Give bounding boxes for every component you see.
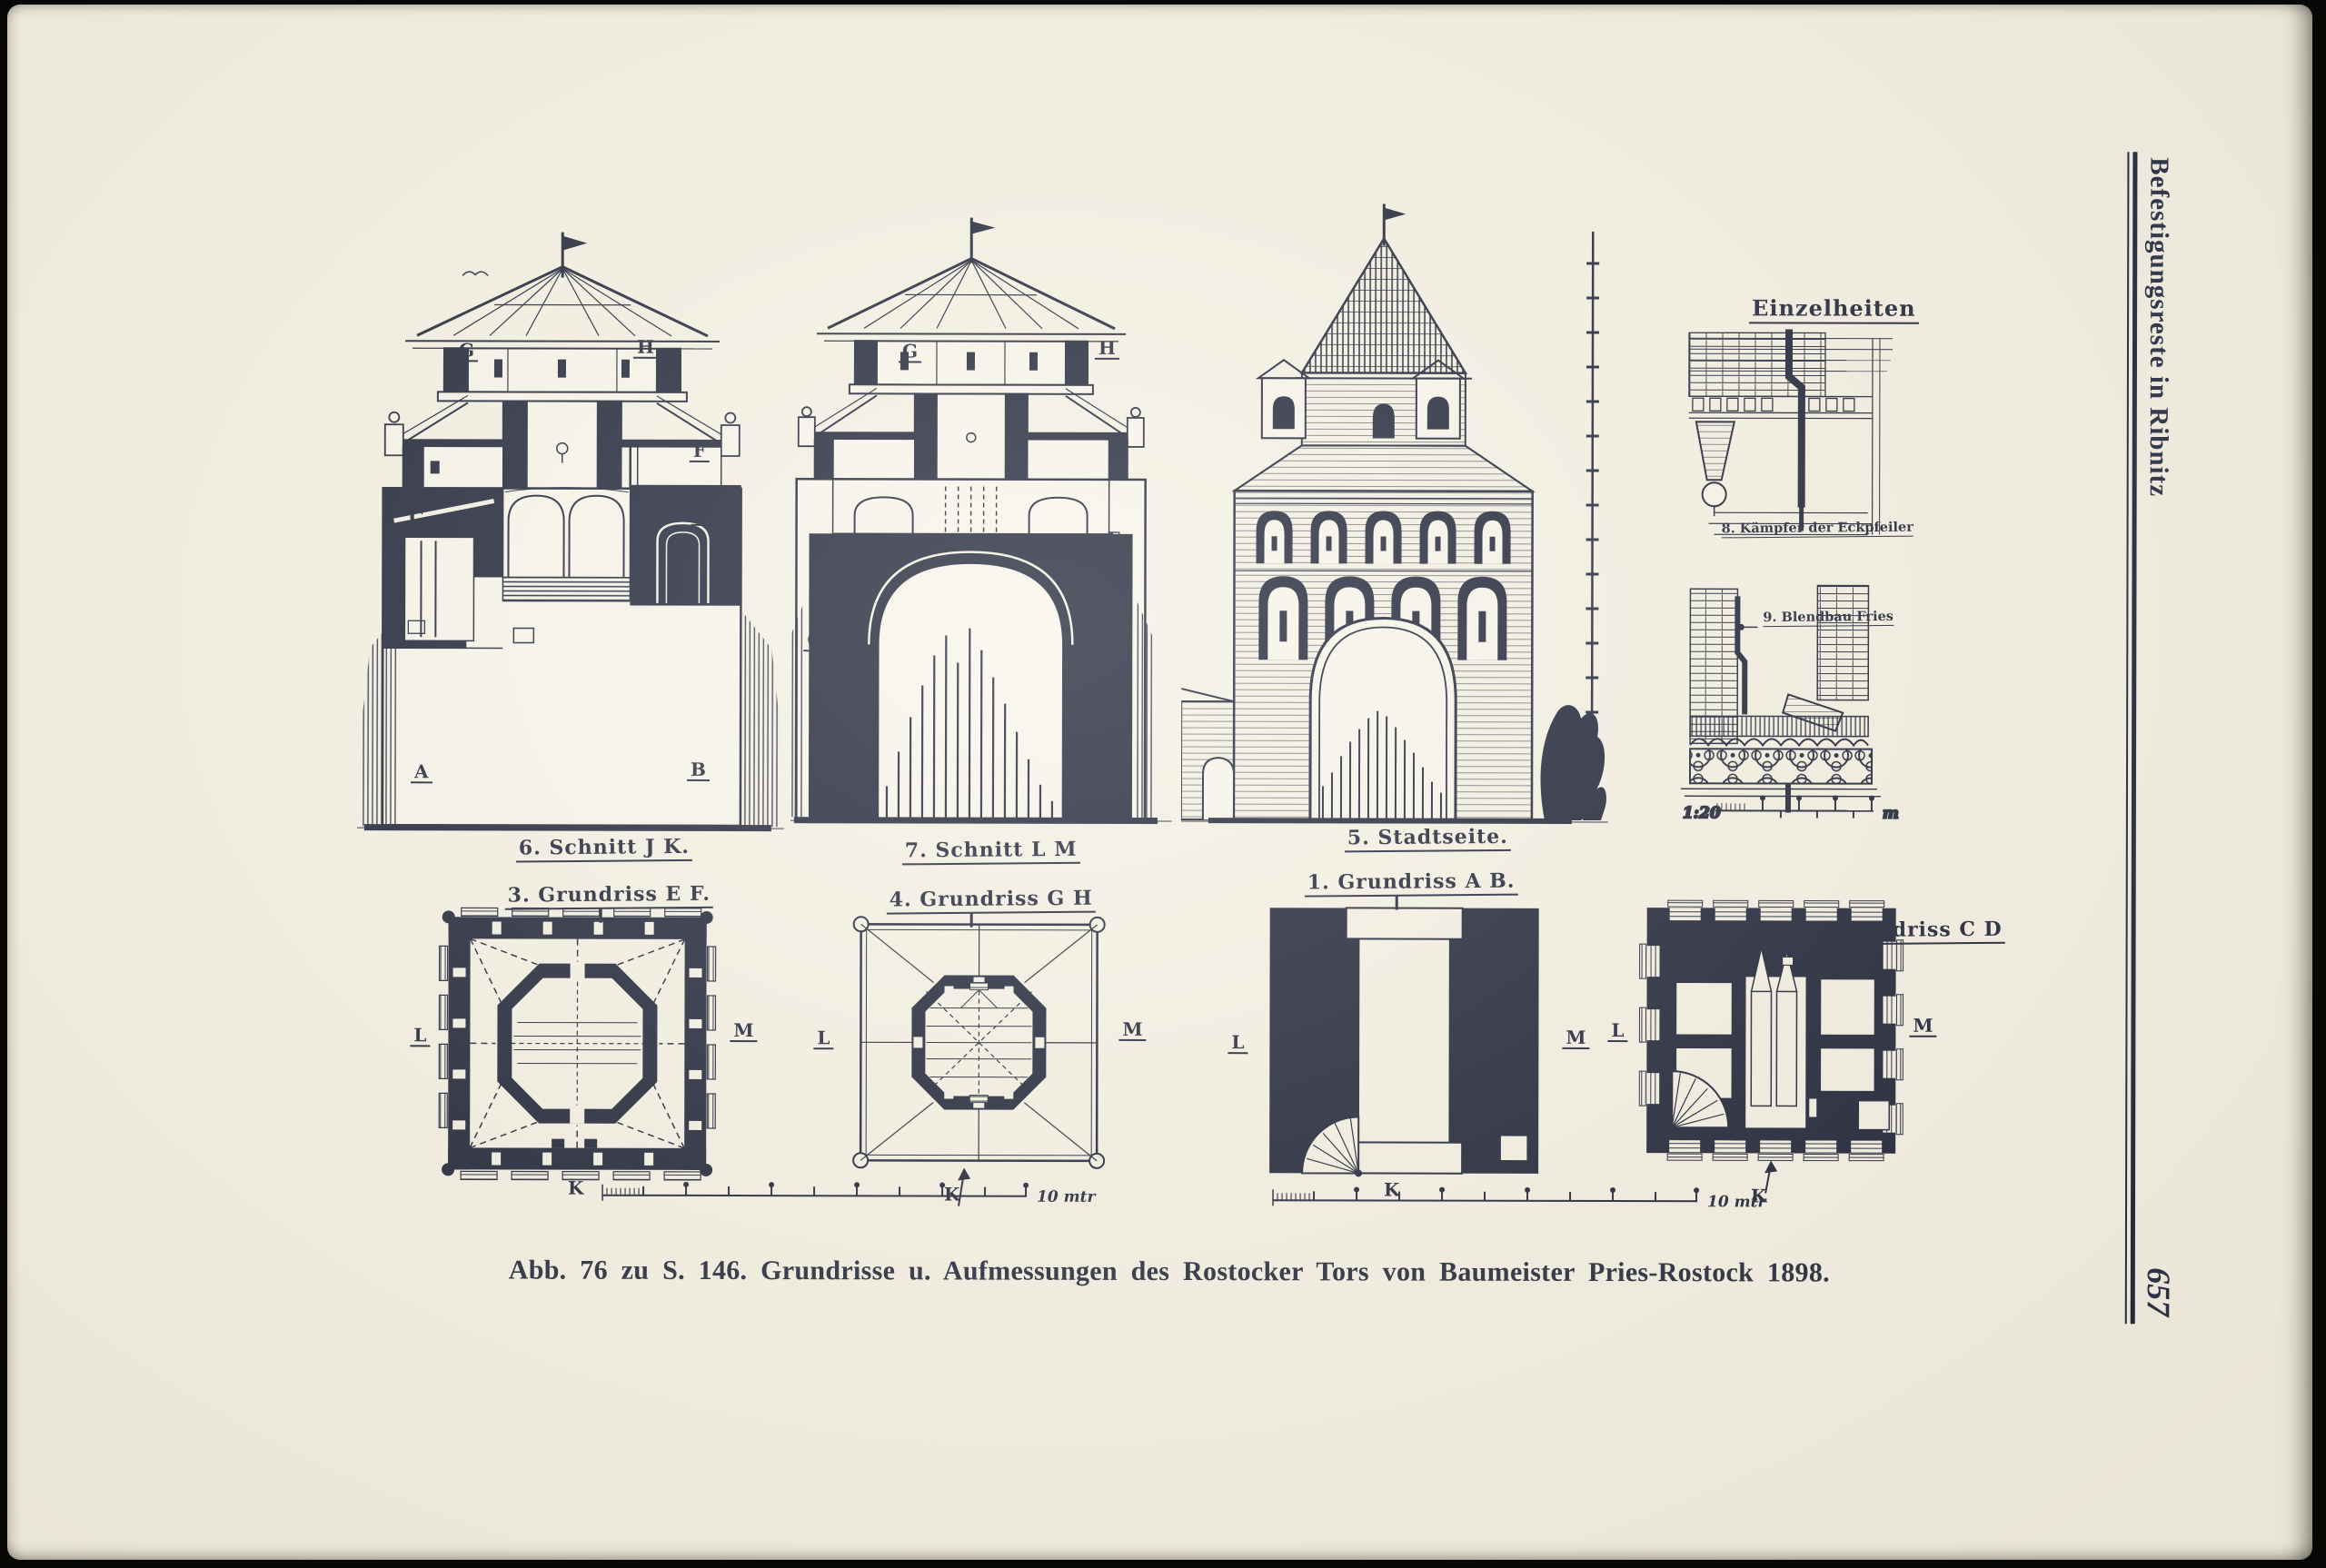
margin-title: Befestigungsreste in Ribnitz	[2143, 157, 2174, 497]
marker-letter-d: D	[691, 505, 714, 526]
plan-scale-label: 10 mtr	[1037, 1188, 1096, 1206]
right-wall-mass	[1449, 908, 1539, 1174]
margin-rule-thick	[2131, 152, 2138, 1324]
marker-letter-h: H	[1095, 339, 1119, 360]
bird-mark	[462, 272, 488, 275]
label-schnitt-jk: 6. Schnitt J K.	[516, 835, 692, 863]
figure-caption: Abb. 76 zu S. 146. Grundrisse u. Aufmess…	[333, 1255, 2005, 1289]
marker-letter-l: L	[410, 1026, 430, 1047]
label-grundriss-gh: 4. Grundriss G H	[887, 887, 1096, 915]
label-einzelheiten: Einzelheiten	[1749, 294, 1919, 323]
plan-ab-drawing	[1222, 869, 1595, 1206]
quatrefoil-band	[1690, 749, 1872, 783]
marker-letter-a: A	[411, 762, 432, 783]
marker-letter-k: K	[940, 1185, 963, 1204]
marker-letter-g: G	[899, 342, 921, 362]
marker-letter-b: B	[687, 760, 710, 781]
label-grundriss-ab: 1. Grundriss A B.	[1305, 869, 1518, 898]
marker-letter-f: F	[1104, 530, 1124, 551]
plan-ef-drawing	[406, 904, 752, 1218]
marker-letter-e: E	[403, 444, 423, 465]
marker-letter-c: C	[406, 508, 428, 529]
detail-scale-unit: m	[1883, 805, 1899, 823]
plan-gh-drawing	[799, 898, 1163, 1213]
details-drawing: 1:20 m	[1681, 289, 1954, 826]
measuring-rod	[1585, 232, 1599, 773]
label-pointer	[600, 908, 602, 923]
plan-scale-bar-right: 10 mtr	[1266, 1184, 1774, 1217]
marker-letter-d: D	[1107, 628, 1129, 649]
detail-scale-label: 1:20	[1683, 804, 1721, 822]
marker-letter-l: L	[1607, 1021, 1627, 1042]
marker-letter-g: G	[455, 341, 478, 362]
label-pointer	[970, 913, 973, 928]
marker-letter-h: H	[633, 338, 658, 359]
label-pointer	[1877, 944, 1880, 958]
marker-letter-k: K	[1747, 1186, 1770, 1206]
label-stadtseite: 5. Stadtseite.	[1345, 825, 1511, 853]
label-grundriss-cd: 2. Grundriss C D	[1799, 918, 2005, 946]
marker-letter-m: M	[1909, 1017, 1936, 1037]
marker-letter-f: F	[690, 442, 710, 462]
spire-roof	[1302, 238, 1466, 372]
marker-letter-m: M	[1562, 1028, 1589, 1049]
label-detail-9: 9. Blendbau Fries	[1763, 609, 1894, 627]
label-pointer	[1396, 896, 1398, 910]
label-grundriss-ef: 3. Grundriss E F.	[505, 882, 713, 910]
marker-letter-l: L	[1228, 1033, 1247, 1054]
book-page: 1:20 m	[7, 5, 2312, 1560]
label-schnitt-lm: 7. Schnitt L M	[902, 838, 1080, 866]
marker-letter-e: E	[810, 536, 830, 557]
marker-letter-k: K	[1380, 1181, 1403, 1200]
marker-letter-l: L	[813, 1028, 833, 1049]
plan-scale-bar-left: 10 mtr	[595, 1179, 1104, 1213]
marker-letter-c: C	[803, 630, 825, 651]
page-content: 1:20 m	[7, 5, 2312, 1560]
page-number: 657	[2140, 1267, 2178, 1316]
label-detail-8: 8. Kämpfer der Eckpfeiler	[1722, 520, 1913, 539]
marker-letter-m: M	[730, 1021, 757, 1042]
marker-letter-m: M	[1118, 1020, 1146, 1041]
detail-scale-bar	[1715, 796, 1874, 818]
marker-letter-k: K	[564, 1179, 587, 1198]
margin-rule-thin	[2125, 152, 2130, 1324]
scanned-page-background: { "page": { "margin_title": "Befestigung…	[0, 0, 2326, 1568]
stadtseite-drawing	[1181, 191, 1610, 859]
